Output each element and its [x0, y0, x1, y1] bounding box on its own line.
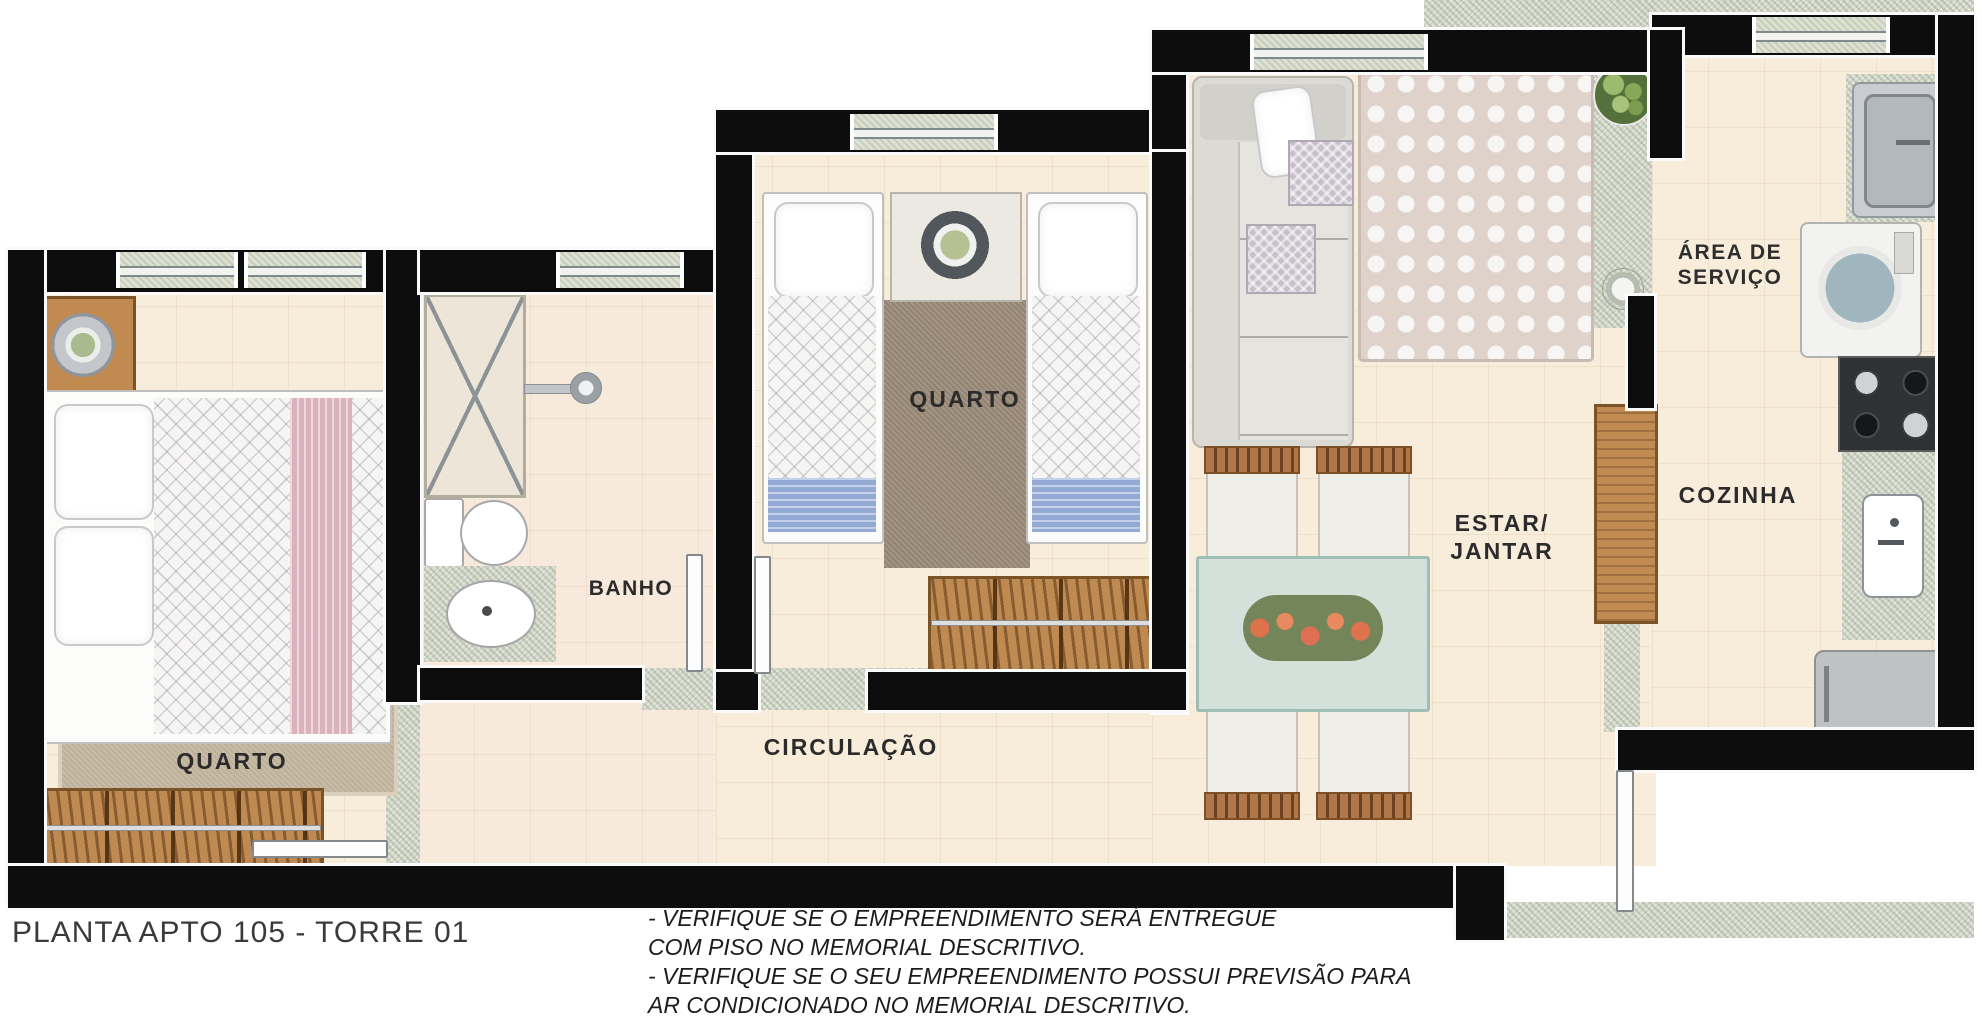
living-label-line2: JANTAR: [1412, 538, 1592, 566]
service-label-line2: SERVIÇO: [1638, 265, 1822, 290]
wall-right: [1938, 15, 1974, 767]
sofa-pillow-check: [1288, 140, 1354, 206]
laundry-tank: [1852, 82, 1946, 218]
disclaimer-line: AR CONDICIONADO NO MEMORIAL DESCRITIVO.: [648, 991, 1411, 1020]
door-bedroom1: [252, 840, 388, 858]
room-label-bedroom1: QUARTO: [132, 748, 332, 776]
door-bedroom2: [754, 556, 771, 674]
washer-panel: [1894, 232, 1914, 274]
wall-divider-stub: [1628, 296, 1654, 408]
dining-chair: [1206, 708, 1298, 816]
wall-bed2-bottom: [868, 672, 1186, 710]
toilet-tank: [424, 498, 464, 568]
tank-basin: [1864, 94, 1936, 208]
tank-faucet-icon: [1896, 140, 1930, 145]
shower-knob-icon: [570, 372, 602, 404]
washer-drum: [1818, 246, 1902, 330]
lamp-icon: [916, 204, 994, 286]
wall-bed2-right: [1152, 152, 1186, 712]
room-label-living: ESTAR/ JANTAR: [1412, 510, 1592, 565]
kitchen-sink: [1862, 494, 1924, 598]
wall-bath-bed2: [716, 150, 752, 672]
bedroom2-wardrobe: [928, 576, 1164, 672]
wall-left: [8, 250, 44, 908]
floor-plan: QUARTO BANHO QUARTO CIRCULAÇÃO: [0, 0, 1982, 1024]
flower-centerpiece: [1243, 595, 1383, 661]
bath-sink-counter: [424, 566, 556, 662]
pillow: [774, 202, 874, 298]
single-bed-2: [1026, 192, 1148, 544]
window-bedroom2: [850, 114, 998, 150]
wall-entry-step: [1456, 866, 1504, 940]
room-label-circulation: CIRCULAÇÃO: [726, 734, 976, 762]
pillow: [1038, 202, 1138, 298]
blue-blanket: [768, 478, 876, 532]
wall-bottom: [8, 866, 1504, 908]
service-label-line1: ÁREA DE: [1638, 240, 1822, 265]
dining-table: [1196, 556, 1430, 712]
toilet-bowl: [460, 500, 528, 566]
door-bathroom: [686, 554, 703, 672]
bed-quilt: [1032, 296, 1140, 478]
dining-chair: [1318, 450, 1410, 558]
room-label-kitchen: COZINHA: [1655, 482, 1821, 510]
bed-runner: [290, 398, 352, 734]
plan-title: PLANTA APTO 105 - TORRE 01: [12, 916, 469, 950]
kitchen-faucet-icon: [1878, 540, 1904, 545]
room-label-bedroom2: QUARTO: [885, 386, 1045, 414]
sofa-pillow-check: [1246, 224, 1316, 294]
disclaimer-line: COM PISO NO MEMORIAL DESCRITIVO.: [648, 933, 1411, 962]
kitchen-divider-counter: [1594, 404, 1658, 624]
window-bathroom: [556, 252, 684, 288]
pillow: [54, 404, 154, 520]
window-bedroom1-b: [244, 252, 366, 288]
disclaimer-line: - VERIFIQUE SE O EMPREENDIMENTO SERÁ ENT…: [648, 904, 1411, 933]
bed-quilt-edge: [352, 398, 386, 734]
bedroom2-rug: [884, 300, 1030, 568]
fridge-handle: [1824, 666, 1829, 722]
living-label-line1: ESTAR/: [1412, 510, 1592, 538]
double-bed: [44, 390, 392, 744]
sofa: [1192, 76, 1354, 448]
stove-icon: [1838, 356, 1944, 452]
window-service: [1752, 17, 1890, 53]
door-entry: [1616, 770, 1634, 912]
disclaimer-notes: - VERIFIQUE SE O EMPREENDIMENTO SERÁ ENT…: [648, 904, 1411, 1020]
kitchen-divider-strip: [1604, 616, 1640, 732]
room-label-bathroom: BANHO: [566, 576, 696, 601]
bed-quilt: [768, 296, 876, 478]
pillow: [54, 526, 154, 646]
bed-quilt: [154, 398, 290, 734]
fridge-icon: [1814, 650, 1942, 738]
sink-faucet-icon: [482, 606, 492, 616]
wall-bed1-bath: [386, 250, 420, 702]
wall-bed2-bottom-left: [716, 672, 758, 710]
blue-blanket: [1032, 478, 1140, 532]
dining-chair: [1318, 708, 1410, 816]
plant-icon: [1593, 64, 1655, 126]
wall-service-left-stub: [1650, 30, 1682, 158]
wall-bath-bottom: [420, 668, 642, 700]
living-rug: [1358, 66, 1594, 362]
lamp-icon: [44, 306, 122, 384]
single-bed-1: [762, 192, 884, 544]
toilet: [424, 498, 526, 564]
window-living: [1250, 34, 1428, 70]
dining-chair: [1206, 450, 1298, 558]
kitchen-drain-icon: [1890, 518, 1899, 527]
window-bedroom1-a: [116, 252, 238, 288]
disclaimer-line: - VERIFIQUE SE O SEU EMPREENDIMENTO POSS…: [648, 962, 1411, 991]
room-label-service: ÁREA DE SERVIÇO: [1638, 240, 1822, 290]
shower: [424, 294, 526, 498]
wall-kitchen-bottom: [1618, 730, 1974, 770]
entry-walkway: [1500, 902, 1974, 938]
